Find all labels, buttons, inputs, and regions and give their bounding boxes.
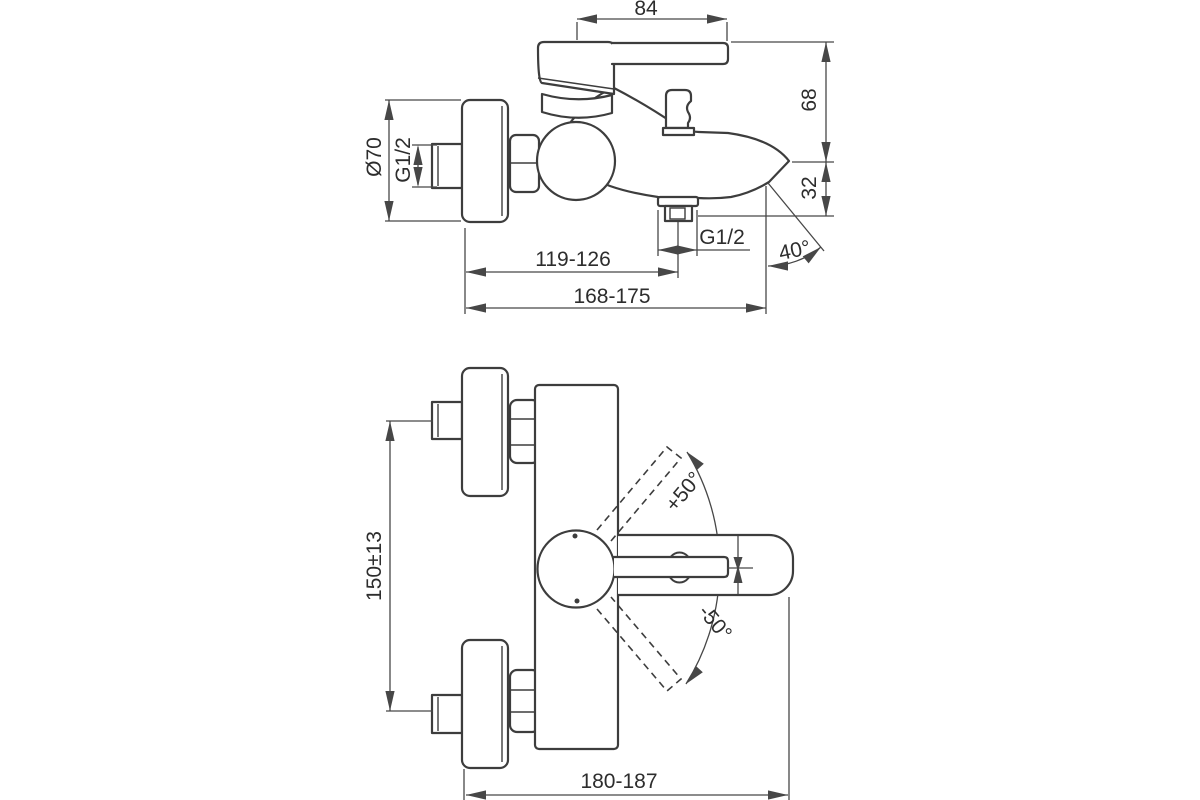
outlet-flange [658, 197, 698, 206]
arrowhead [746, 303, 766, 312]
inlet-nipple-top [432, 402, 462, 439]
inlet-nipple-bottom [432, 695, 462, 733]
dim-inlet-thread: G1/2 [392, 137, 437, 187]
dim-handle-length: 84 [577, 0, 727, 41]
arrowhead [683, 666, 703, 687]
arrowhead [658, 267, 678, 276]
arrowhead [577, 14, 597, 23]
lever-handle-bar [612, 43, 728, 64]
screw-dot-bottom [575, 599, 580, 604]
faucet-dimension-drawing: 84 68 32 Ø70 [0, 0, 1200, 800]
arrowhead [707, 14, 727, 23]
arrowhead [385, 691, 394, 711]
dim-84-label: 84 [634, 0, 658, 20]
arrowhead [466, 790, 486, 799]
valve-front-circle [538, 531, 615, 608]
screw-dot-top [573, 534, 578, 539]
arrowhead [821, 162, 830, 182]
arrowhead [768, 790, 788, 799]
dim-68-label: 68 [798, 88, 821, 111]
diverter-base [663, 128, 694, 135]
arrowhead [384, 100, 393, 120]
cartridge-neck [542, 94, 612, 118]
lever-bar-front [614, 557, 728, 577]
valve-ball-body [537, 122, 615, 200]
dim-g12-outlet-label: G1/2 [699, 226, 745, 249]
wall-escutcheon-bottom [462, 640, 508, 768]
lever-cap [538, 42, 614, 94]
arrowhead [821, 42, 830, 62]
dim-g12-inlet-label: G1/2 [392, 137, 415, 183]
technical-drawing-page: 84 68 32 Ø70 [0, 0, 1200, 800]
dim-150-label: 150±13 [363, 531, 386, 601]
dim-inlet-spacing: 150±13 [363, 421, 433, 711]
side-view: 84 68 32 Ø70 [363, 0, 834, 314]
inlet-nipple [432, 144, 462, 188]
arrowhead [677, 245, 697, 254]
dim-plus50-label: +50° [661, 468, 707, 517]
arrowhead [684, 449, 704, 470]
arrowhead [821, 196, 830, 216]
arrowhead [658, 245, 678, 254]
dim-180-187-label: 180-187 [580, 770, 657, 793]
arrowhead [821, 142, 830, 162]
arrowhead [466, 267, 486, 276]
front-view: 150±13 +50° -50° 180-187 [363, 368, 793, 800]
diverter-knob [666, 90, 691, 128]
dim-minus50-label: -50° [694, 601, 737, 645]
wall-escutcheon-top [462, 368, 508, 496]
dim-119-126-label: 119-126 [535, 248, 611, 271]
wall-escutcheon [462, 100, 508, 222]
arrowhead [385, 421, 394, 441]
arrowhead [384, 201, 393, 221]
dim-32-label: 32 [798, 176, 821, 199]
arrowhead [466, 303, 486, 312]
dim-d70-label: Ø70 [363, 137, 386, 177]
dim-168-175-label: 168-175 [573, 285, 650, 308]
